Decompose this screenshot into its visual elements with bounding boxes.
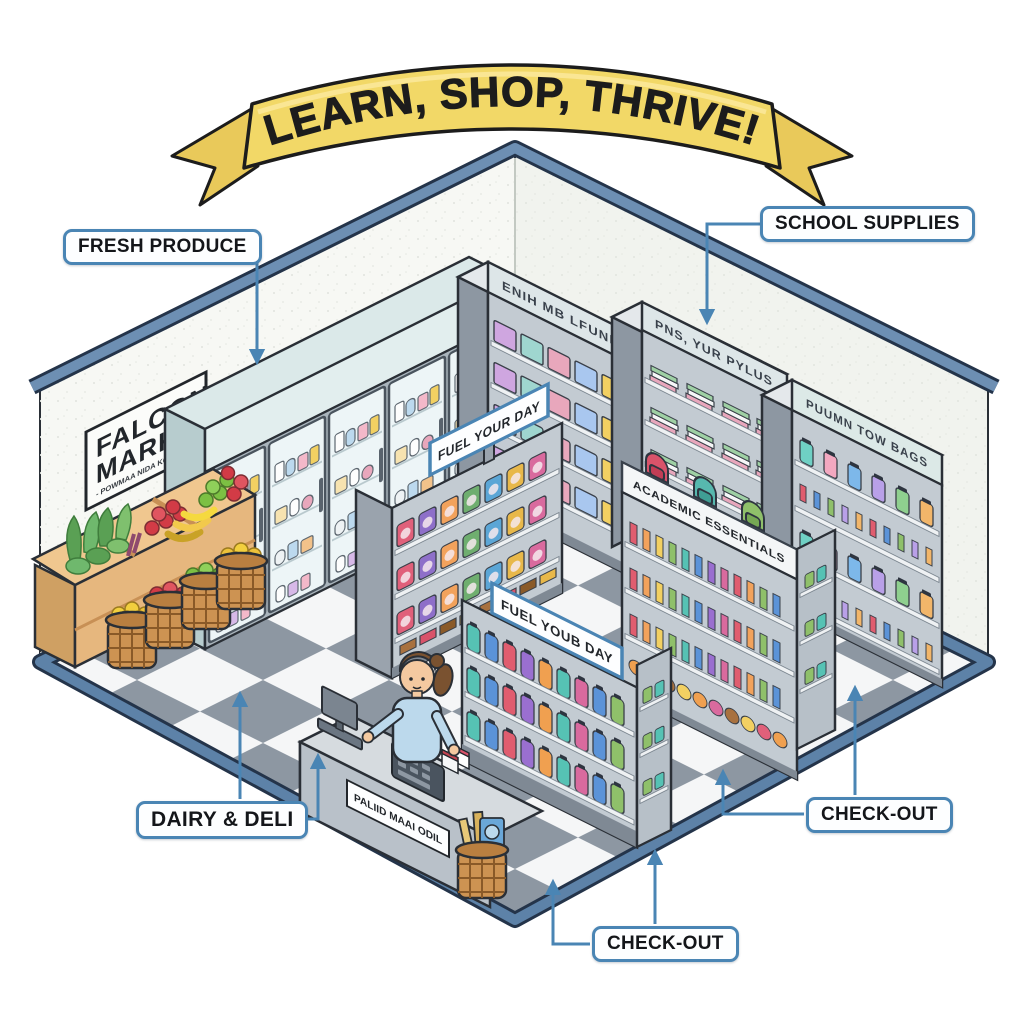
callout-checkout-right: CHECK-OUT [806,797,953,833]
store-diagram: FALCON MARKET - POWMAA NIDA KCAPOL ENIH … [0,0,1024,1024]
shopping-basket [456,812,508,898]
callout-fresh-produce: FRESH PRODUCE [63,229,262,265]
callout-school-supplies: SCHOOL SUPPLIES [760,206,975,242]
callout-dairy-deli: DAIRY & DELI [136,801,308,839]
callout-checkout-bottom: CHECK-OUT [592,926,739,962]
